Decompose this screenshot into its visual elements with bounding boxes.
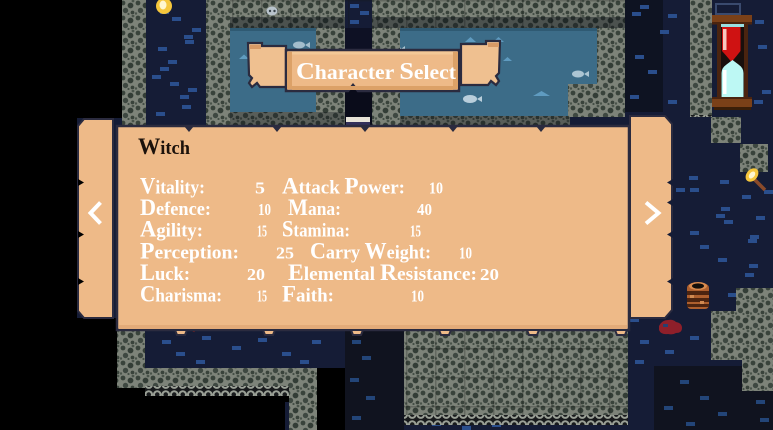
svg-text:Faith:: Faith:	[282, 282, 334, 307]
svg-text:15: 15	[257, 222, 267, 241]
svg-text:10: 10	[429, 179, 443, 198]
svg-text:Elemental Resistance:: Elemental Resistance:	[288, 260, 477, 285]
svg-text:Character Select: Character Select	[296, 59, 456, 85]
svg-text:15: 15	[257, 287, 267, 306]
svg-text:10: 10	[459, 243, 472, 262]
svg-text:40: 40	[417, 200, 432, 219]
svg-text:10: 10	[411, 287, 424, 306]
svg-text:Charisma:: Charisma:	[140, 282, 222, 307]
svg-text:10: 10	[258, 200, 271, 219]
svg-text:15: 15	[410, 222, 421, 241]
svg-text:Witch: Witch	[138, 134, 190, 159]
svg-text:5: 5	[255, 179, 265, 198]
svg-text:Mana:: Mana:	[288, 195, 341, 220]
svg-text:20: 20	[247, 265, 265, 284]
svg-text:20: 20	[480, 265, 499, 284]
svg-text:Carry Weight:: Carry Weight:	[310, 238, 431, 263]
